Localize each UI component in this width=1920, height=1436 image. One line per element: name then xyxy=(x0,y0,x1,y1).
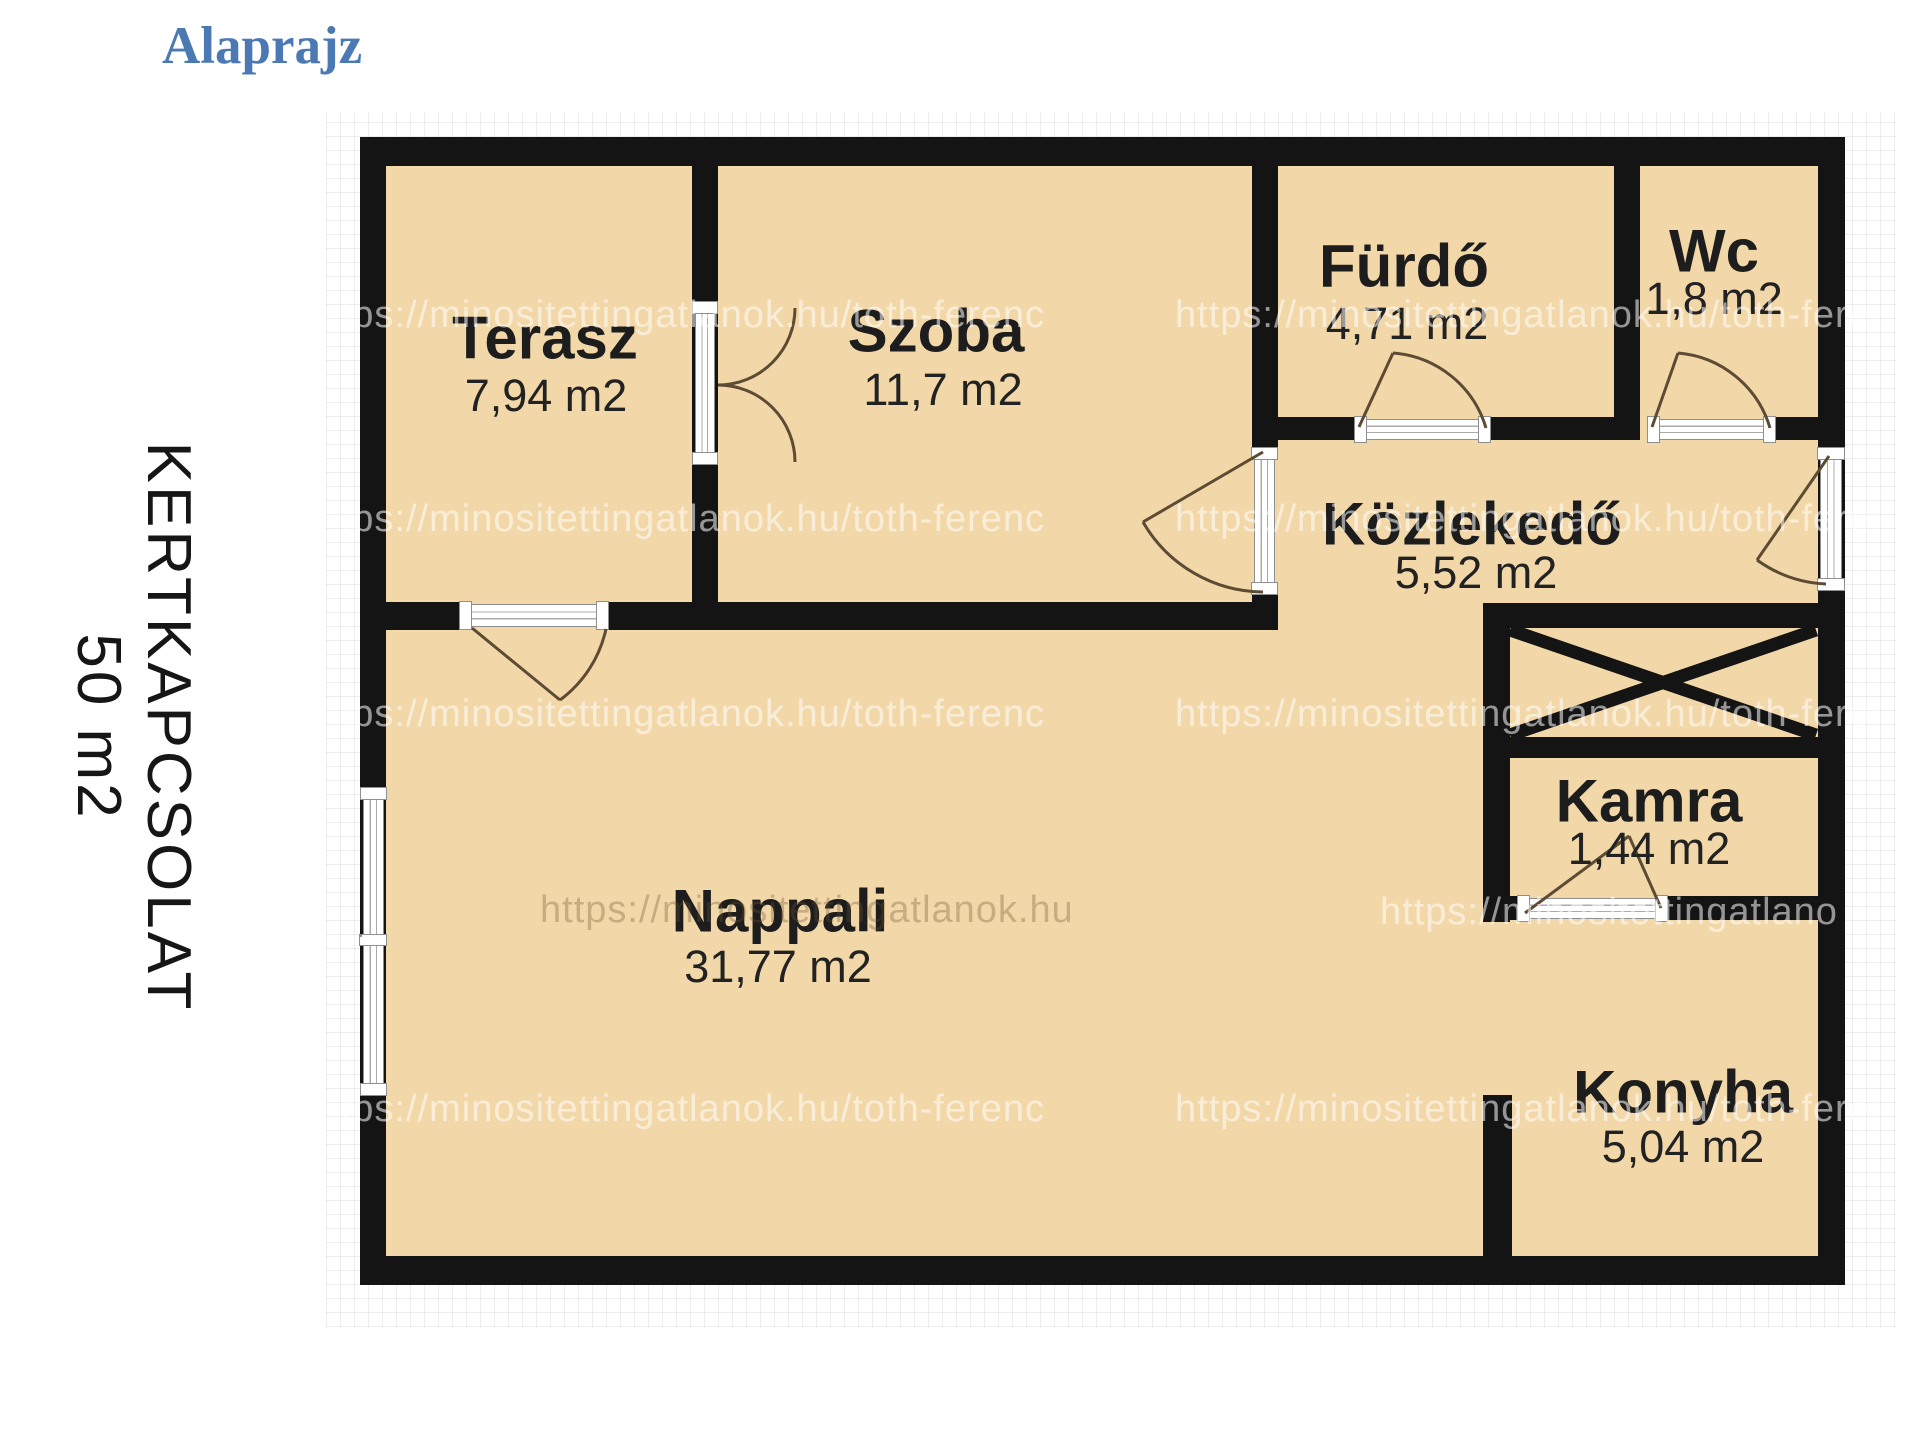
door-wc xyxy=(1648,419,1775,440)
room-area-szoba: 11,7 m2 xyxy=(863,364,1022,416)
window-left-wall-divider xyxy=(359,934,387,946)
watermark-text: https://minositettingatlanok.hu/toth-fer… xyxy=(340,1088,1045,1131)
page-title: Alaprajz xyxy=(162,16,362,76)
wall-shaft-kamra-left xyxy=(1483,603,1510,922)
garden-connection-area: 50 m2 xyxy=(63,442,133,1013)
room-label-furdo: Fürdő xyxy=(1319,232,1489,301)
wall-south-right-segment xyxy=(608,602,1278,630)
floor-plan-page: { "page": { "title": "Alaprajz" }, "side… xyxy=(0,0,1920,1436)
watermark-text: https://minositettingatlanok.hu/toth-fer… xyxy=(340,693,1045,736)
room-area-kamra: 1,44 m2 xyxy=(1568,823,1731,875)
garden-connection-note: KERTKAPCSOLAT 50 m2 xyxy=(63,442,203,1013)
door-terasz-nappali xyxy=(460,604,608,627)
watermark-row-4-dark: https://minositettingatlanok.hu/toth-fer… xyxy=(540,889,1070,932)
watermark-row-3: https://minositettingatlanok.hu/toth-fer… xyxy=(340,693,1880,736)
wall-corridor-north-a xyxy=(1252,417,1355,440)
watermark-text: https://minositettingatlanok.hu/toth-fer… xyxy=(340,294,1045,337)
wall-south-left-segment xyxy=(386,602,460,630)
watermark-text: https://minositettingatlanok.hu/toth-fer… xyxy=(540,889,1070,931)
watermark-row-5: https://minositettingatlanok.hu/toth-fer… xyxy=(340,1088,1880,1131)
watermark-text: https://minositettingatlanok.hu/toth-fer… xyxy=(1175,294,1880,337)
wall-szoba-east-lower xyxy=(1252,594,1278,630)
wall-corridor-north-b xyxy=(1490,417,1614,440)
wall-outer-bottom xyxy=(360,1256,1845,1285)
watermark-text: https://minositettingatlanok.hu/toth-fer… xyxy=(1175,1088,1880,1131)
watermark-text: https://minositettingatlanok.hu/toth-fer… xyxy=(1175,498,1880,541)
watermark-text: https://minositettingatlanok.hu/toth-fer… xyxy=(1175,693,1880,736)
room-area-kozlekedo: 5,52 m2 xyxy=(1395,547,1558,599)
door-furdo xyxy=(1355,419,1490,440)
watermark-text: https://minositettingatlanok.hu/toth-fer… xyxy=(340,498,1045,541)
watermark-row-4-light: https://minositettingatlanok.hu/toth-fer… xyxy=(1380,891,1840,934)
room-area-nappali: 31,77 m2 xyxy=(684,941,872,993)
watermark-text: https://minositettingatlanok.hu/toth-fer… xyxy=(1380,891,1840,933)
wall-corridor-north-c xyxy=(1775,417,1818,440)
watermark-row-2: https://minositettingatlanok.hu/toth-fer… xyxy=(340,498,1880,541)
wall-shaft-top xyxy=(1483,603,1818,628)
garden-connection-label: KERTKAPCSOLAT xyxy=(133,442,203,1013)
watermark-row-1: https://minositettingatlanok.hu/toth-fer… xyxy=(340,294,1880,337)
wall-shaft-bottom xyxy=(1483,737,1818,758)
room-area-terasz: 7,94 m2 xyxy=(465,370,628,422)
wall-outer-top xyxy=(360,137,1845,166)
